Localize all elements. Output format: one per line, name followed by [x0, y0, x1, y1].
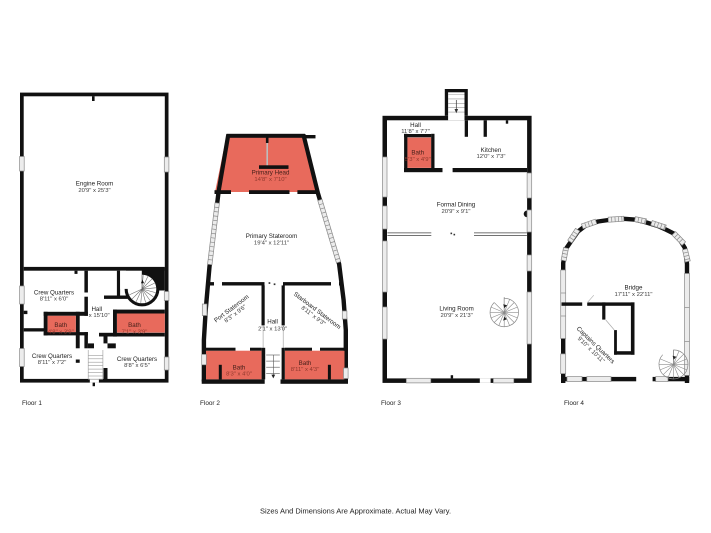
- svg-text:12'0" x 7'3": 12'0" x 7'3": [476, 154, 505, 160]
- svg-text:7'1" x 3'9": 7'1" x 3'9": [122, 330, 148, 336]
- svg-text:Formal Dining: Formal Dining: [437, 202, 476, 209]
- svg-text:14'8" x 7'10": 14'8" x 7'10": [254, 177, 286, 183]
- svg-text:8'11" x 7'2": 8'11" x 7'2": [38, 360, 67, 366]
- svg-text:Bridge: Bridge: [625, 285, 643, 292]
- svg-text:20'9" x 25'3": 20'9" x 25'3": [78, 188, 110, 194]
- svg-text:8'11" x 6'0": 8'11" x 6'0": [40, 297, 69, 303]
- svg-text:Bath: Bath: [233, 364, 246, 371]
- svg-text:20'9" x 9'1": 20'9" x 9'1": [441, 209, 470, 215]
- svg-text:Primary Head: Primary Head: [252, 170, 290, 177]
- svg-text:Crew Quarters: Crew Quarters: [32, 353, 72, 360]
- svg-text:Bath: Bath: [299, 360, 312, 367]
- svg-text:5'3" x 4'9": 5'3" x 4'9": [405, 157, 431, 163]
- svg-text:17'11" x 22'11": 17'11" x 22'11": [615, 292, 653, 298]
- svg-text:Hall: Hall: [91, 306, 102, 313]
- svg-text:19'4" x 12'11": 19'4" x 12'11": [254, 241, 289, 247]
- svg-text:Floor 1: Floor 1: [22, 400, 42, 407]
- svg-text:Living Room: Living Room: [439, 306, 473, 313]
- svg-text:Primary Stateroom: Primary Stateroom: [246, 233, 298, 240]
- svg-text:Bath: Bath: [411, 149, 424, 156]
- svg-text:Floor 2: Floor 2: [200, 400, 220, 407]
- svg-text:8'3" x 4'0": 8'3" x 4'0": [226, 372, 252, 378]
- svg-text:Floor 4: Floor 4: [564, 400, 584, 407]
- svg-text:8'8" x 6'5": 8'8" x 6'5": [124, 363, 150, 369]
- svg-text:Kitchen: Kitchen: [481, 147, 502, 154]
- svg-text:Floor 3: Floor 3: [381, 400, 401, 407]
- svg-text:8'11" x 4'3": 8'11" x 4'3": [291, 367, 320, 373]
- svg-text:2'1" x 13'0": 2'1" x 13'0": [258, 326, 287, 332]
- svg-text:Bath: Bath: [128, 322, 141, 329]
- svg-text:Sizes And Dimensions Are Appro: Sizes And Dimensions Are Approximate. Ac…: [260, 506, 451, 515]
- svg-text:20'9" x 21'3": 20'9" x 21'3": [440, 313, 472, 319]
- svg-text:Hall: Hall: [410, 122, 421, 129]
- svg-text:11'8" x 7'7": 11'8" x 7'7": [401, 129, 430, 135]
- svg-text:Crew Quarters: Crew Quarters: [117, 356, 157, 363]
- svg-text:Crew Quarters: Crew Quarters: [34, 289, 74, 296]
- svg-text:4'8" x 3'9": 4'8" x 3'9": [48, 330, 74, 336]
- svg-text:x 15'10": x 15'10": [89, 313, 110, 319]
- svg-text:Engine Room: Engine Room: [76, 181, 114, 188]
- svg-text:Bath: Bath: [54, 322, 67, 329]
- svg-text:Hall: Hall: [267, 319, 278, 326]
